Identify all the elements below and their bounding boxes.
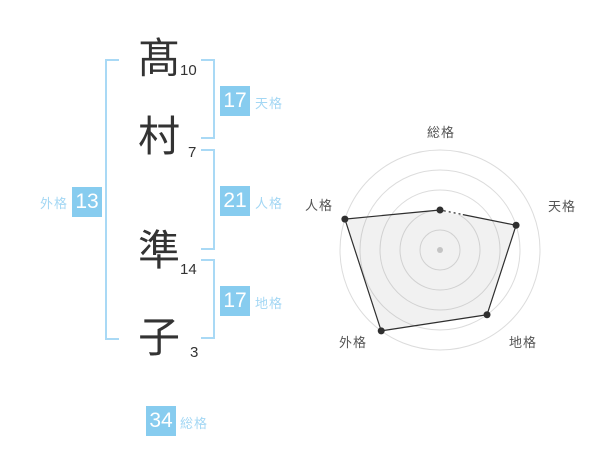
axis-label-jinkaku: 人格 (305, 199, 333, 212)
axis-label-tenkaku: 天格 (548, 200, 576, 213)
name-analysis-panel: 髙 10 村 7 準 14 子 3 17 天格 21 人格 17 地格 外格 1… (0, 0, 600, 470)
axis-label-chikaku: 地格 (509, 336, 537, 349)
axis-label-soukaku: 総格 (427, 126, 455, 139)
radar-chart (0, 0, 600, 470)
axis-label-gaikaku: 外格 (339, 336, 367, 349)
